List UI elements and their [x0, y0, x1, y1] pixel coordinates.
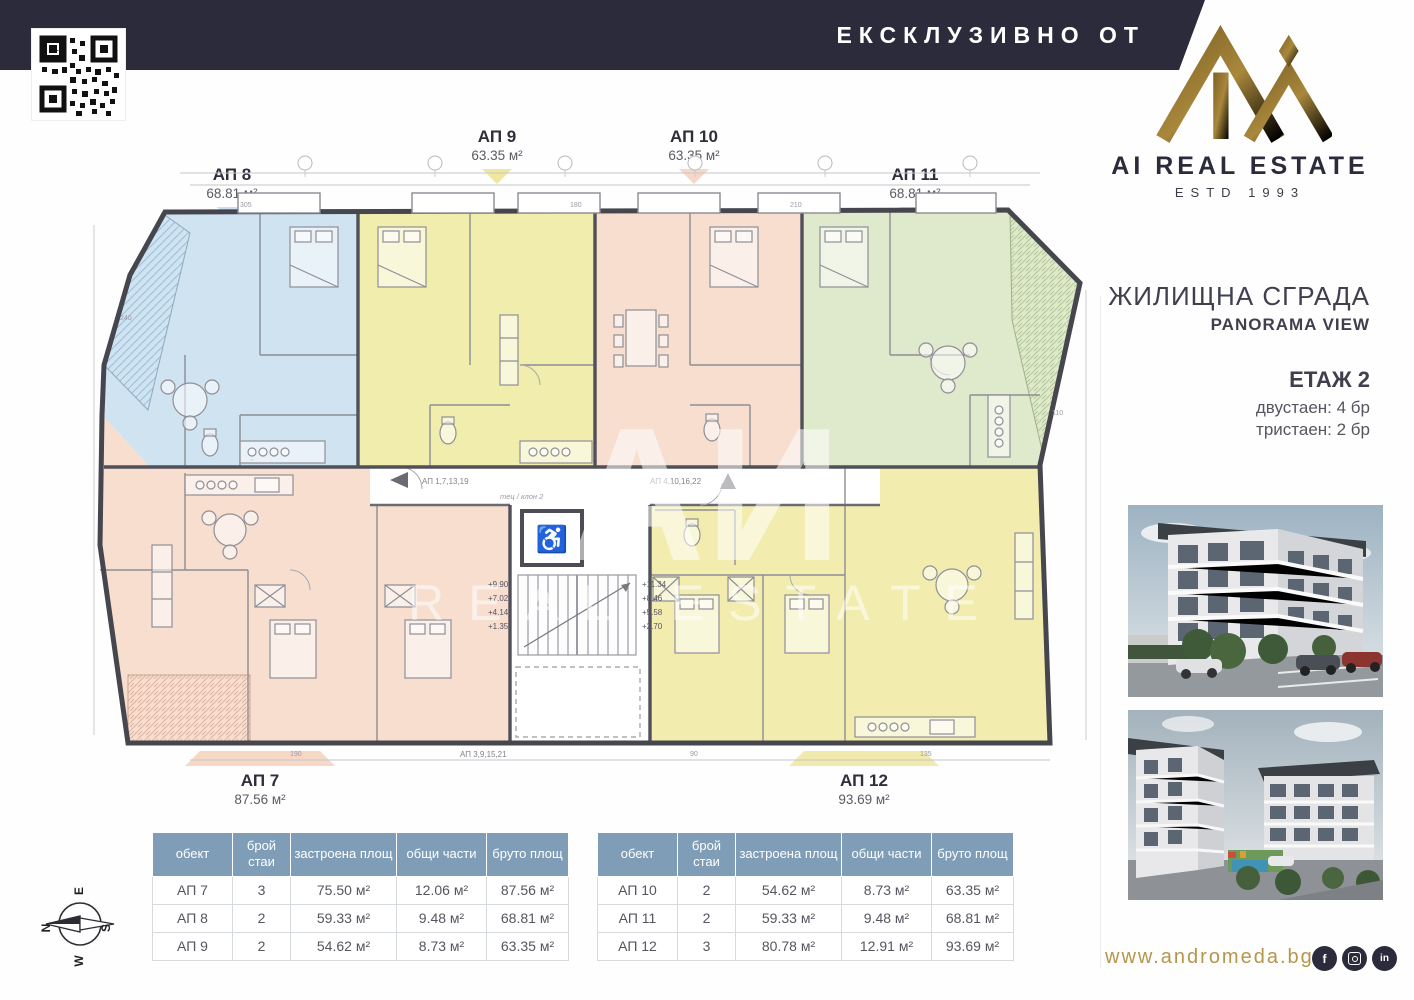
column-header: застроена площ — [291, 833, 397, 877]
table-cell: 54.62 м² — [736, 876, 842, 904]
dim-text: 180 — [570, 202, 582, 209]
watermark-monogram: АИ — [568, 389, 842, 601]
table-cell: 68.81 м² — [487, 904, 569, 932]
dim-text: 240 — [120, 315, 132, 322]
instagram-glyph — [1348, 952, 1361, 965]
area-table-left: обект брой стаи застроена площ общи част… — [152, 832, 569, 961]
dim-text: 90 — [690, 751, 698, 758]
corridor-label: АП 3,9,15,21 — [460, 750, 507, 759]
table-row: АП 11 2 59.33 м² 9.48 м² 68.81 м² — [598, 904, 1014, 932]
column-header: общи части — [397, 833, 487, 877]
table-cell: 75.50 м² — [291, 876, 397, 904]
compass-w: W — [72, 955, 86, 967]
ap12-area: 93.69 м² — [789, 792, 939, 807]
brand-name: AI REAL ESTATE — [1090, 152, 1390, 181]
table-cell: АП 7 — [153, 876, 233, 904]
table-cell: 59.33 м² — [736, 904, 842, 932]
social-icons: f in — [1312, 946, 1397, 971]
table-cell: 8.73 м² — [397, 932, 487, 960]
bed — [290, 227, 338, 287]
website-link[interactable]: www.andromeda.bg — [1105, 946, 1305, 969]
exclusive-label: ЕКСКЛУЗИВНО ОТ — [836, 0, 1145, 70]
column-header: брой стаи — [678, 833, 736, 877]
column-header: бруто площ — [487, 833, 569, 877]
table-cell: 68.81 м² — [932, 904, 1014, 932]
compass-s: S — [99, 924, 113, 932]
wheelchair-icon: ♿ — [536, 524, 568, 554]
compass-n: N — [39, 924, 53, 933]
ap7-area: 87.56 м² — [185, 792, 335, 807]
dim-text: 110 — [1052, 410, 1063, 417]
dim-text: 305 — [240, 202, 252, 209]
column-header: общи части — [842, 833, 932, 877]
table-row: АП 10 2 54.62 м² 8.73 м² 63.35 м² — [598, 876, 1014, 904]
ap7-name: АП 7 — [185, 771, 335, 791]
top-bar: ЕКСКЛУЗИВНО ОТ — [0, 0, 1205, 70]
table-cell: 3 — [678, 932, 736, 960]
column-header: обект — [153, 833, 233, 877]
table-cell: 59.33 м² — [291, 904, 397, 932]
table-cell: АП 9 — [153, 932, 233, 960]
dim-text: 210 — [790, 202, 802, 209]
table-header-row: обект брой стаи застроена площ общи част… — [598, 833, 1014, 877]
sidebar-divider — [1100, 296, 1101, 968]
table-row: АП 9 2 54.62 м² 8.73 м² 63.35 м² — [153, 932, 569, 960]
table-cell: 93.69 м² — [932, 932, 1014, 960]
qr-code — [32, 29, 125, 120]
corridor-note: тец / клон 2 — [500, 492, 544, 501]
bed — [710, 227, 758, 287]
table-cell: АП 11 — [598, 904, 678, 932]
table-header-row: обект брой стаи застроена площ общи част… — [153, 833, 569, 877]
table-cell: 12.06 м² — [397, 876, 487, 904]
table-cell: 54.62 м² — [291, 932, 397, 960]
floor-plan: ♿ 305 180 210 240 110 190 90 135 АП 1,7,… — [90, 115, 1090, 770]
table-cell: 9.48 м² — [397, 904, 487, 932]
balcony-ap7 — [128, 675, 250, 743]
linkedin-icon[interactable]: in — [1372, 946, 1397, 971]
column-header: обект — [598, 833, 678, 877]
mountain-logo-icon — [1152, 24, 1332, 148]
area-table-right: обект брой стаи застроена площ общи част… — [597, 832, 1014, 961]
table-cell: АП 8 — [153, 904, 233, 932]
dim-text: 190 — [290, 751, 302, 758]
linkedin-glyph: in — [1380, 953, 1389, 964]
table-cell: 87.56 м² — [487, 876, 569, 904]
table-cell: 2 — [678, 904, 736, 932]
bed — [270, 620, 316, 678]
table-cell: 3 — [233, 876, 291, 904]
table-cell: 80.78 м² — [736, 932, 842, 960]
table-row: АП 12 3 80.78 м² 12.91 м² 93.69 м² — [598, 932, 1014, 960]
table-cell: 63.35 м² — [487, 932, 569, 960]
watermark-text: REAL ESTATE — [408, 575, 1002, 631]
bed — [378, 227, 426, 287]
instagram-icon[interactable] — [1342, 946, 1367, 971]
qr-pattern — [32, 29, 125, 120]
table-row: АП 7 3 75.50 м² 12.06 м² 87.56 м² — [153, 876, 569, 904]
building-render-1 — [1128, 505, 1383, 697]
table-cell: 2 — [678, 876, 736, 904]
grid-bubbles — [298, 156, 977, 170]
building-photo-1 — [1128, 505, 1383, 697]
table-cell: 12.91 м² — [842, 932, 932, 960]
corridor-label: АП 1,7,13,19 — [422, 477, 469, 486]
facebook-glyph: f — [1323, 952, 1327, 966]
column-header: брой стаи — [233, 833, 291, 877]
table-cell: АП 12 — [598, 932, 678, 960]
table-row: АП 8 2 59.33 м² 9.48 м² 68.81 м² — [153, 904, 569, 932]
facebook-icon[interactable]: f — [1312, 946, 1337, 971]
compass-rose-icon: N E S W — [36, 878, 124, 970]
dim-text: 135 — [920, 751, 932, 758]
flyer-page: { "header": { "exclusive_label": "ЕКСКЛУ… — [0, 0, 1414, 1000]
table-cell: 8.73 м² — [842, 876, 932, 904]
table-cell: 2 — [233, 904, 291, 932]
column-header: бруто площ — [932, 833, 1014, 877]
brand-logo — [1152, 24, 1332, 148]
table-cell: АП 10 — [598, 876, 678, 904]
building-photo-2 — [1128, 710, 1383, 900]
building-render-2 — [1128, 710, 1383, 900]
ap12-name: АП 12 — [789, 771, 939, 791]
table-cell: 2 — [233, 932, 291, 960]
table-cell: 63.35 м² — [932, 876, 1014, 904]
dining-table-rect — [614, 310, 668, 367]
column-header: застроена площ — [736, 833, 842, 877]
brand-estd: ESTD 1993 — [1090, 185, 1390, 200]
compass-e: E — [72, 887, 86, 895]
table-cell: 9.48 м² — [842, 904, 932, 932]
bed — [820, 227, 868, 287]
